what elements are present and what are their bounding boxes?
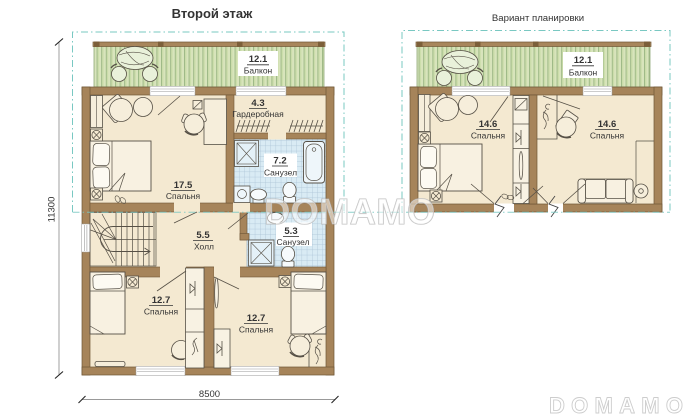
svg-text:12.7: 12.7 bbox=[247, 313, 266, 324]
svg-text:Санузел: Санузел bbox=[264, 168, 297, 178]
svg-text:8500: 8500 bbox=[199, 389, 220, 400]
svg-text:Второй этаж: Второй этаж bbox=[172, 6, 253, 21]
svg-text:Вариант планировки: Вариант планировки bbox=[492, 13, 584, 24]
svg-text:12.7: 12.7 bbox=[152, 295, 171, 306]
svg-text:Гардеробная: Гардеробная bbox=[232, 109, 284, 119]
svg-text:Спальня: Спальня bbox=[239, 325, 274, 335]
svg-text:DOMAMO: DOMAMO bbox=[264, 191, 435, 232]
svg-text:7.2: 7.2 bbox=[273, 156, 286, 167]
svg-text:Холл: Холл bbox=[194, 242, 214, 252]
svg-text:Санузел: Санузел bbox=[276, 237, 309, 247]
svg-text:12.1: 12.1 bbox=[574, 55, 593, 66]
svg-text:14.6: 14.6 bbox=[598, 119, 617, 130]
svg-text:11300: 11300 bbox=[47, 197, 58, 223]
svg-text:Балкон: Балкон bbox=[244, 66, 273, 76]
svg-text:12.1: 12.1 bbox=[249, 54, 268, 65]
svg-text:17.5: 17.5 bbox=[174, 180, 193, 191]
svg-text:14.6: 14.6 bbox=[479, 119, 498, 130]
svg-text:Балкон: Балкон bbox=[569, 68, 598, 78]
svg-text:5.5: 5.5 bbox=[196, 230, 210, 241]
svg-text:Спальня: Спальня bbox=[471, 131, 506, 141]
svg-text:Спальня: Спальня bbox=[166, 191, 201, 201]
svg-text:4.3: 4.3 bbox=[251, 98, 264, 109]
svg-text:Спальня: Спальня bbox=[590, 131, 625, 141]
svg-text:Спальня: Спальня bbox=[144, 307, 179, 317]
